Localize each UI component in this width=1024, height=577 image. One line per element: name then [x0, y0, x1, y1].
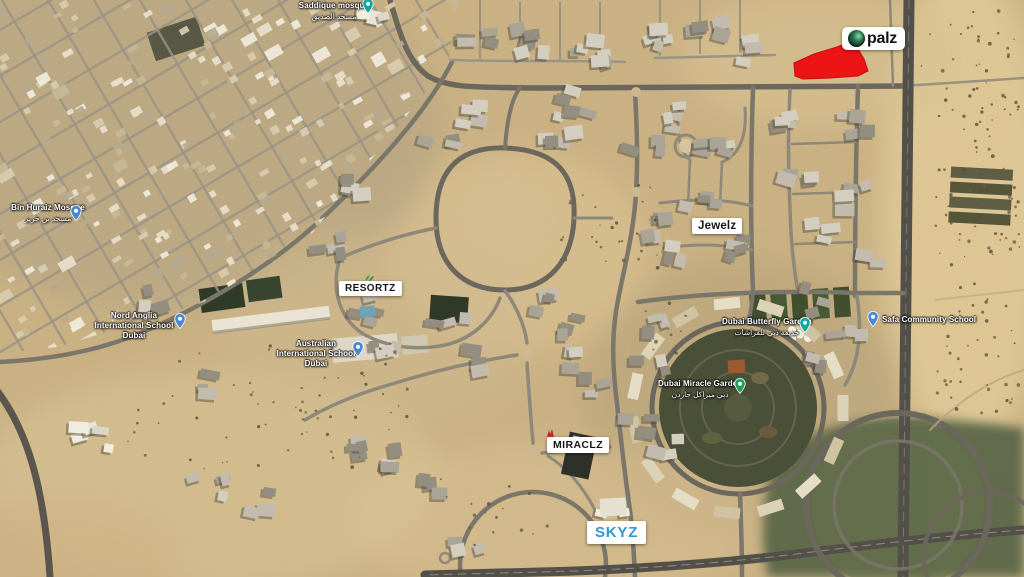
miracle-garden — [659, 329, 817, 487]
poi-name: Australian International School Dubai — [277, 339, 356, 368]
mosque-pin-icon[interactable] — [362, 0, 374, 14]
poi-name-arabic: دبي ميراكل جاردن — [658, 390, 742, 399]
poi-name: Saddique mosque — [299, 1, 369, 10]
satellite-imagery[interactable] — [0, 0, 1024, 577]
poi-australian-school[interactable]: Australian International School Dubai — [274, 339, 358, 369]
poi-name: Safa Community School — [882, 315, 976, 324]
attraction-pin-icon[interactable] — [734, 378, 746, 394]
opalz-logo: palz — [842, 27, 905, 50]
garden-castle — [728, 359, 746, 373]
resortz-label: RESORTZ — [339, 281, 402, 296]
school-pin-icon[interactable] — [352, 341, 364, 357]
satellite-map[interactable]: Saddique mosque مسجد الصديق Bin Huraiz M… — [0, 0, 1024, 577]
opalz-logo-text: palz — [867, 31, 897, 47]
poi-safa-school[interactable]: Safa Community School — [882, 315, 976, 325]
school-pin-icon[interactable] — [867, 311, 879, 327]
opalz-logo-icon — [848, 30, 865, 47]
spark-icon — [546, 429, 555, 438]
attraction-pin-icon[interactable] — [799, 317, 811, 333]
jewelz-label: Jewelz — [692, 218, 742, 234]
poi-saddique-mosque[interactable]: Saddique mosque مسجد الصديق — [296, 1, 372, 21]
miraclz-label-text: MIRACLZ — [553, 439, 603, 451]
jewelz-label-text: Jewelz — [698, 220, 736, 232]
mosque-pin-icon[interactable] — [70, 205, 82, 221]
leaf-icon — [364, 274, 375, 282]
skyz-label: SKYZ — [587, 521, 646, 544]
miraclz-label: MIRACLZ — [547, 437, 609, 453]
poi-name: Nord Anglia International School Dubai — [95, 311, 174, 340]
resortz-label-text: RESORTZ — [345, 283, 396, 294]
poi-name-arabic: مسجد الصديق — [296, 12, 372, 21]
skyz-label-text: SKYZ — [595, 524, 638, 541]
poi-name: Dubai Miracle Garden — [658, 379, 742, 388]
poi-nord-anglia-school[interactable]: Nord Anglia International School Dubai — [92, 311, 176, 341]
poi-miracle-garden[interactable]: Dubai Miracle Garden دبي ميراكل جاردن — [658, 379, 742, 399]
school-pin-icon[interactable] — [174, 313, 186, 329]
